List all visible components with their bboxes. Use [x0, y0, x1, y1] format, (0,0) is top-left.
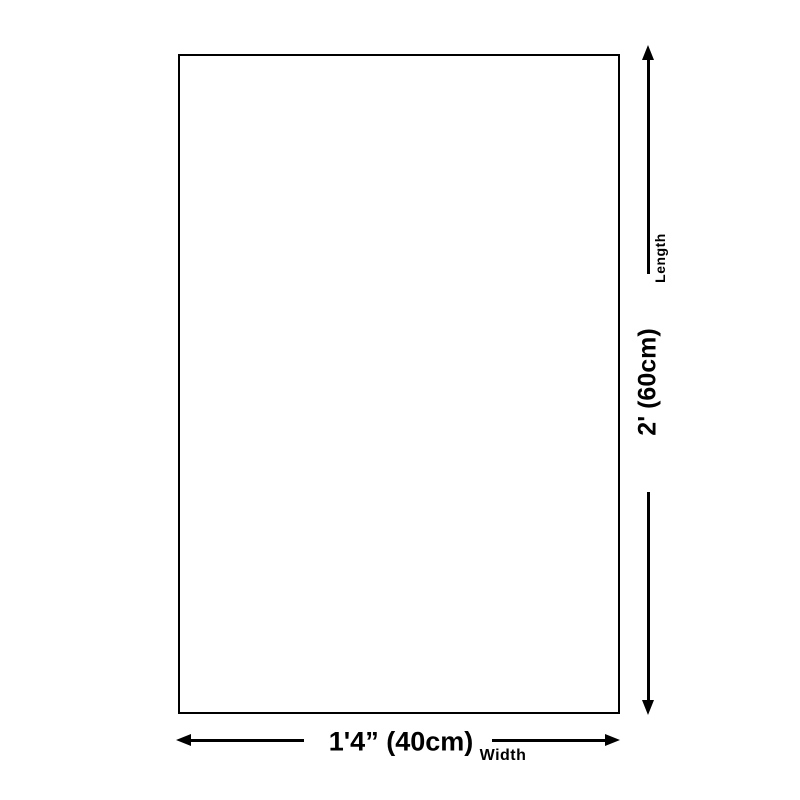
product-outline-rect: [178, 54, 620, 714]
width-dimension-line-left: [188, 739, 304, 742]
length-axis-label: Length: [652, 233, 668, 283]
length-dimension-line-bottom: [647, 492, 650, 702]
dimension-diagram: Length 2' (60cm) 1'4” (40cm) Width: [0, 0, 800, 800]
length-dimension-value: 2' (60cm): [634, 328, 663, 435]
width-dimension-value: 1'4” (40cm): [329, 727, 474, 758]
arrow-down-icon: [642, 700, 654, 715]
arrow-right-icon: [605, 734, 620, 746]
width-axis-label: Width: [480, 747, 527, 765]
length-dimension-line-top: [647, 58, 650, 274]
width-dimension-line-right: [492, 739, 608, 742]
